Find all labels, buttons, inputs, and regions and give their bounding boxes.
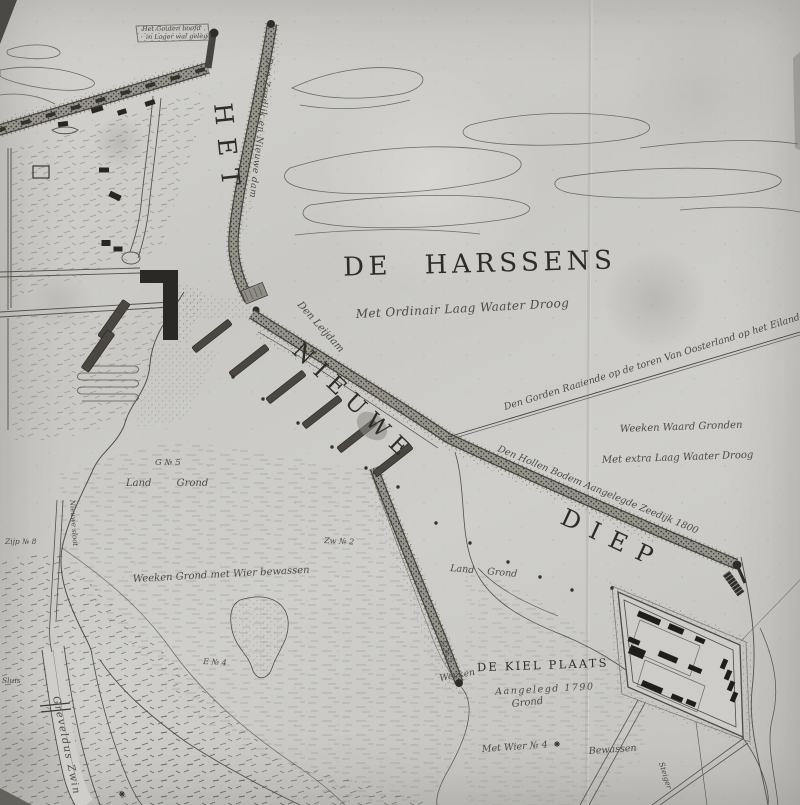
historical-map-nieuwe-diep: HET NIEUWE DIEP DE HARSSENS DE KIEL PLAA… <box>0 0 800 805</box>
note-sluis: Sluis <box>2 676 21 685</box>
map-canvas: HET NIEUWE DIEP DE HARSSENS DE KIEL PLAA… <box>0 0 800 805</box>
marker-zijp8: Zijp № 8 <box>4 537 37 546</box>
marker-zw2: Zw № 2 <box>323 536 355 547</box>
note-flag-2: in Lager wal gelegd <box>146 32 212 41</box>
marker-e4: E № 4 <box>202 657 227 667</box>
note-land-grond-1: Land Grond <box>125 478 208 489</box>
marker-g5: G № 5 <box>155 458 181 468</box>
